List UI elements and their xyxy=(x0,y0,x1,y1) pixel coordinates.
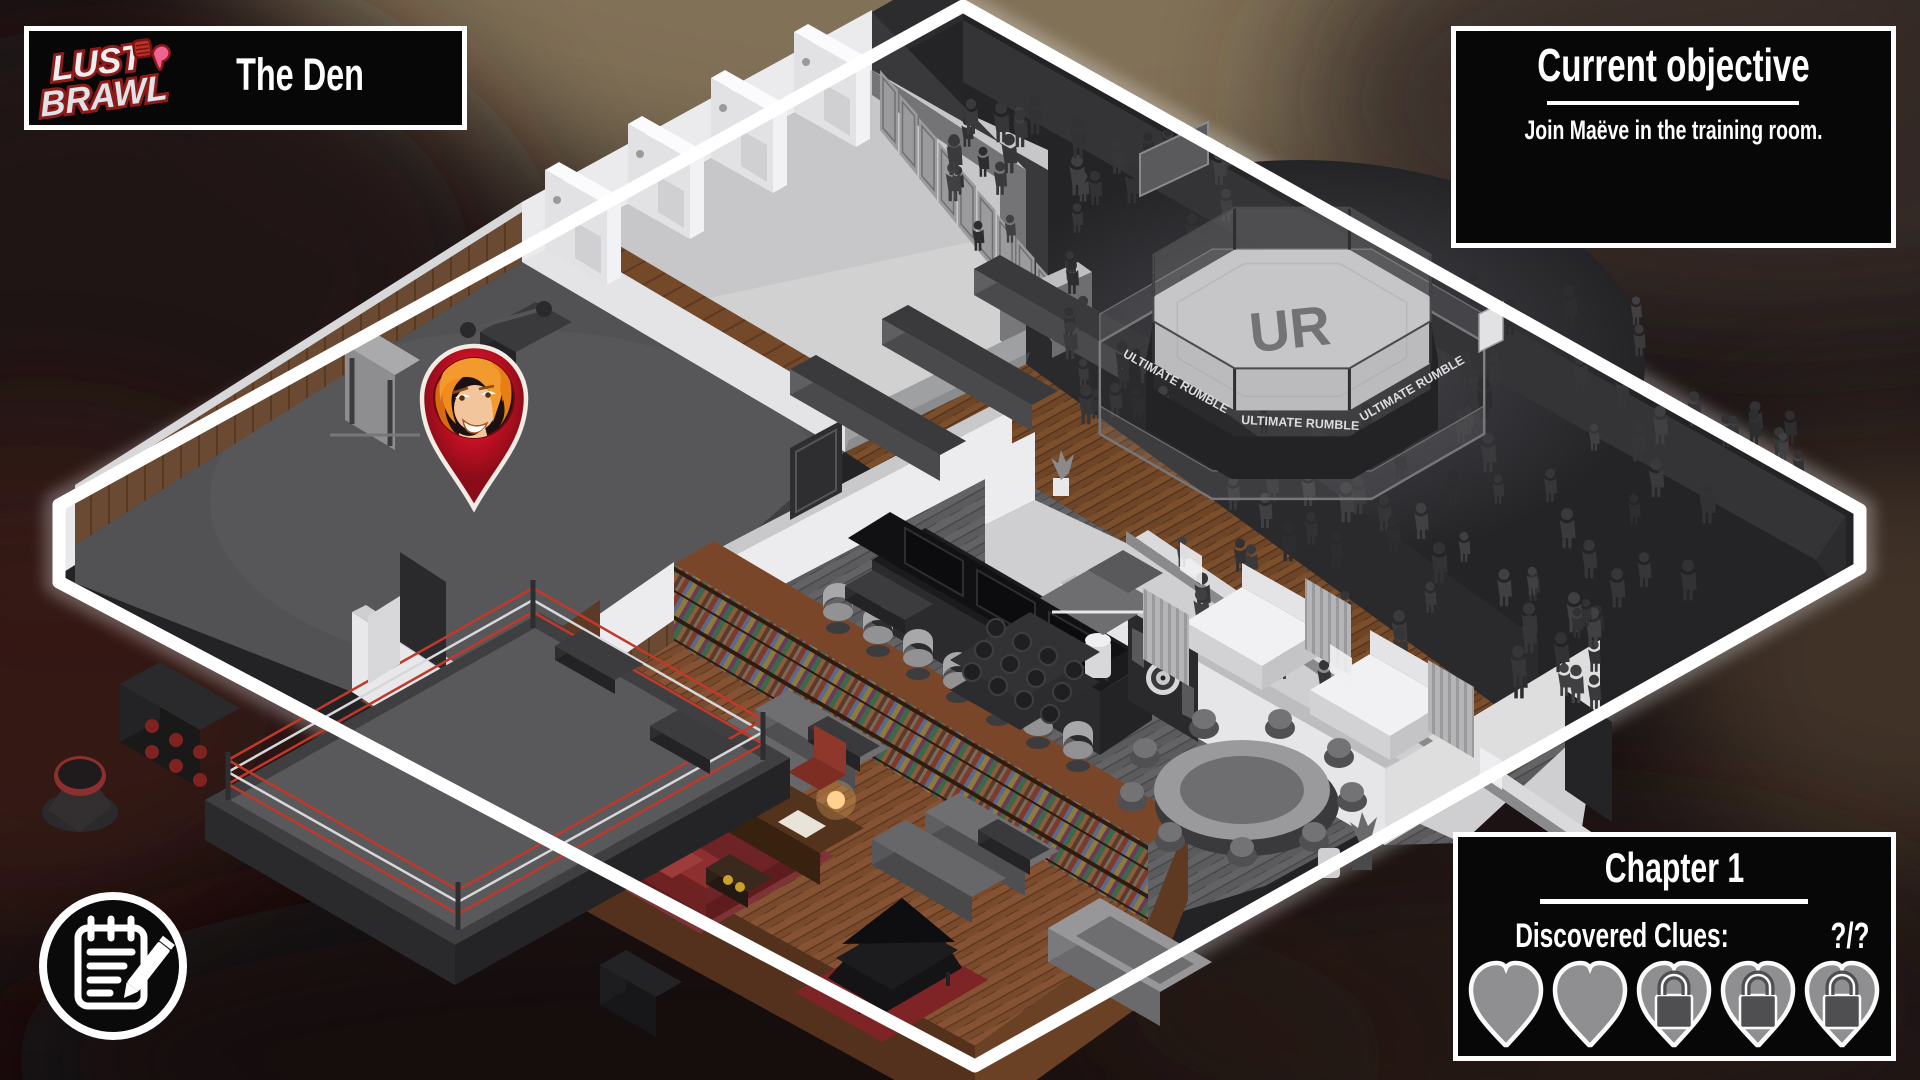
svg-text:UR: UR xyxy=(1246,293,1333,364)
